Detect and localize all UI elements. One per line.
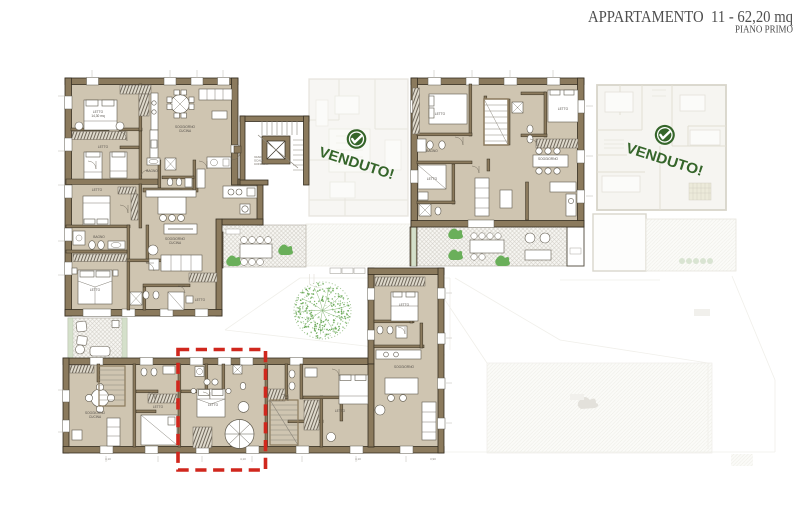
svg-text:LETTO: LETTO [195, 298, 206, 302]
svg-text:CONDOM.: CONDOM. [254, 162, 269, 166]
svg-text:LETTO: LETTO [335, 409, 346, 413]
svg-text:LETTO: LETTO [435, 112, 446, 116]
svg-text:BAGNO: BAGNO [146, 169, 158, 173]
svg-text:3,90: 3,90 [430, 457, 436, 461]
svg-text:LETTO: LETTO [208, 403, 219, 407]
svg-text:LETTO: LETTO [98, 145, 109, 149]
svg-text:CUCINA: CUCINA [169, 241, 182, 245]
svg-text:LETTO: LETTO [90, 288, 101, 292]
svg-text:BAGNO: BAGNO [93, 235, 105, 239]
svg-text:LETTO: LETTO [558, 107, 569, 111]
svg-text:SOGGIORNO: SOGGIORNO [394, 365, 415, 369]
svg-text:PIANO PRIMO: PIANO PRIMO [735, 24, 793, 36]
svg-text:LETTO: LETTO [153, 405, 164, 409]
svg-text:BAGNO: BAGNO [426, 149, 438, 153]
svg-text:4,10: 4,10 [355, 457, 361, 461]
svg-text:4,10: 4,10 [240, 457, 246, 461]
svg-text:14,30 mq: 14,30 mq [91, 114, 105, 118]
svg-text:LETTO: LETTO [427, 177, 438, 181]
svg-text:LETTO: LETTO [92, 188, 103, 192]
svg-text:4,10: 4,10 [105, 457, 111, 461]
svg-text:CUCINA: CUCINA [179, 129, 192, 133]
svg-text:LETTO: LETTO [399, 303, 410, 307]
svg-text:CUCINA: CUCINA [89, 415, 102, 419]
svg-text:SOGGIORNO: SOGGIORNO [538, 157, 559, 161]
